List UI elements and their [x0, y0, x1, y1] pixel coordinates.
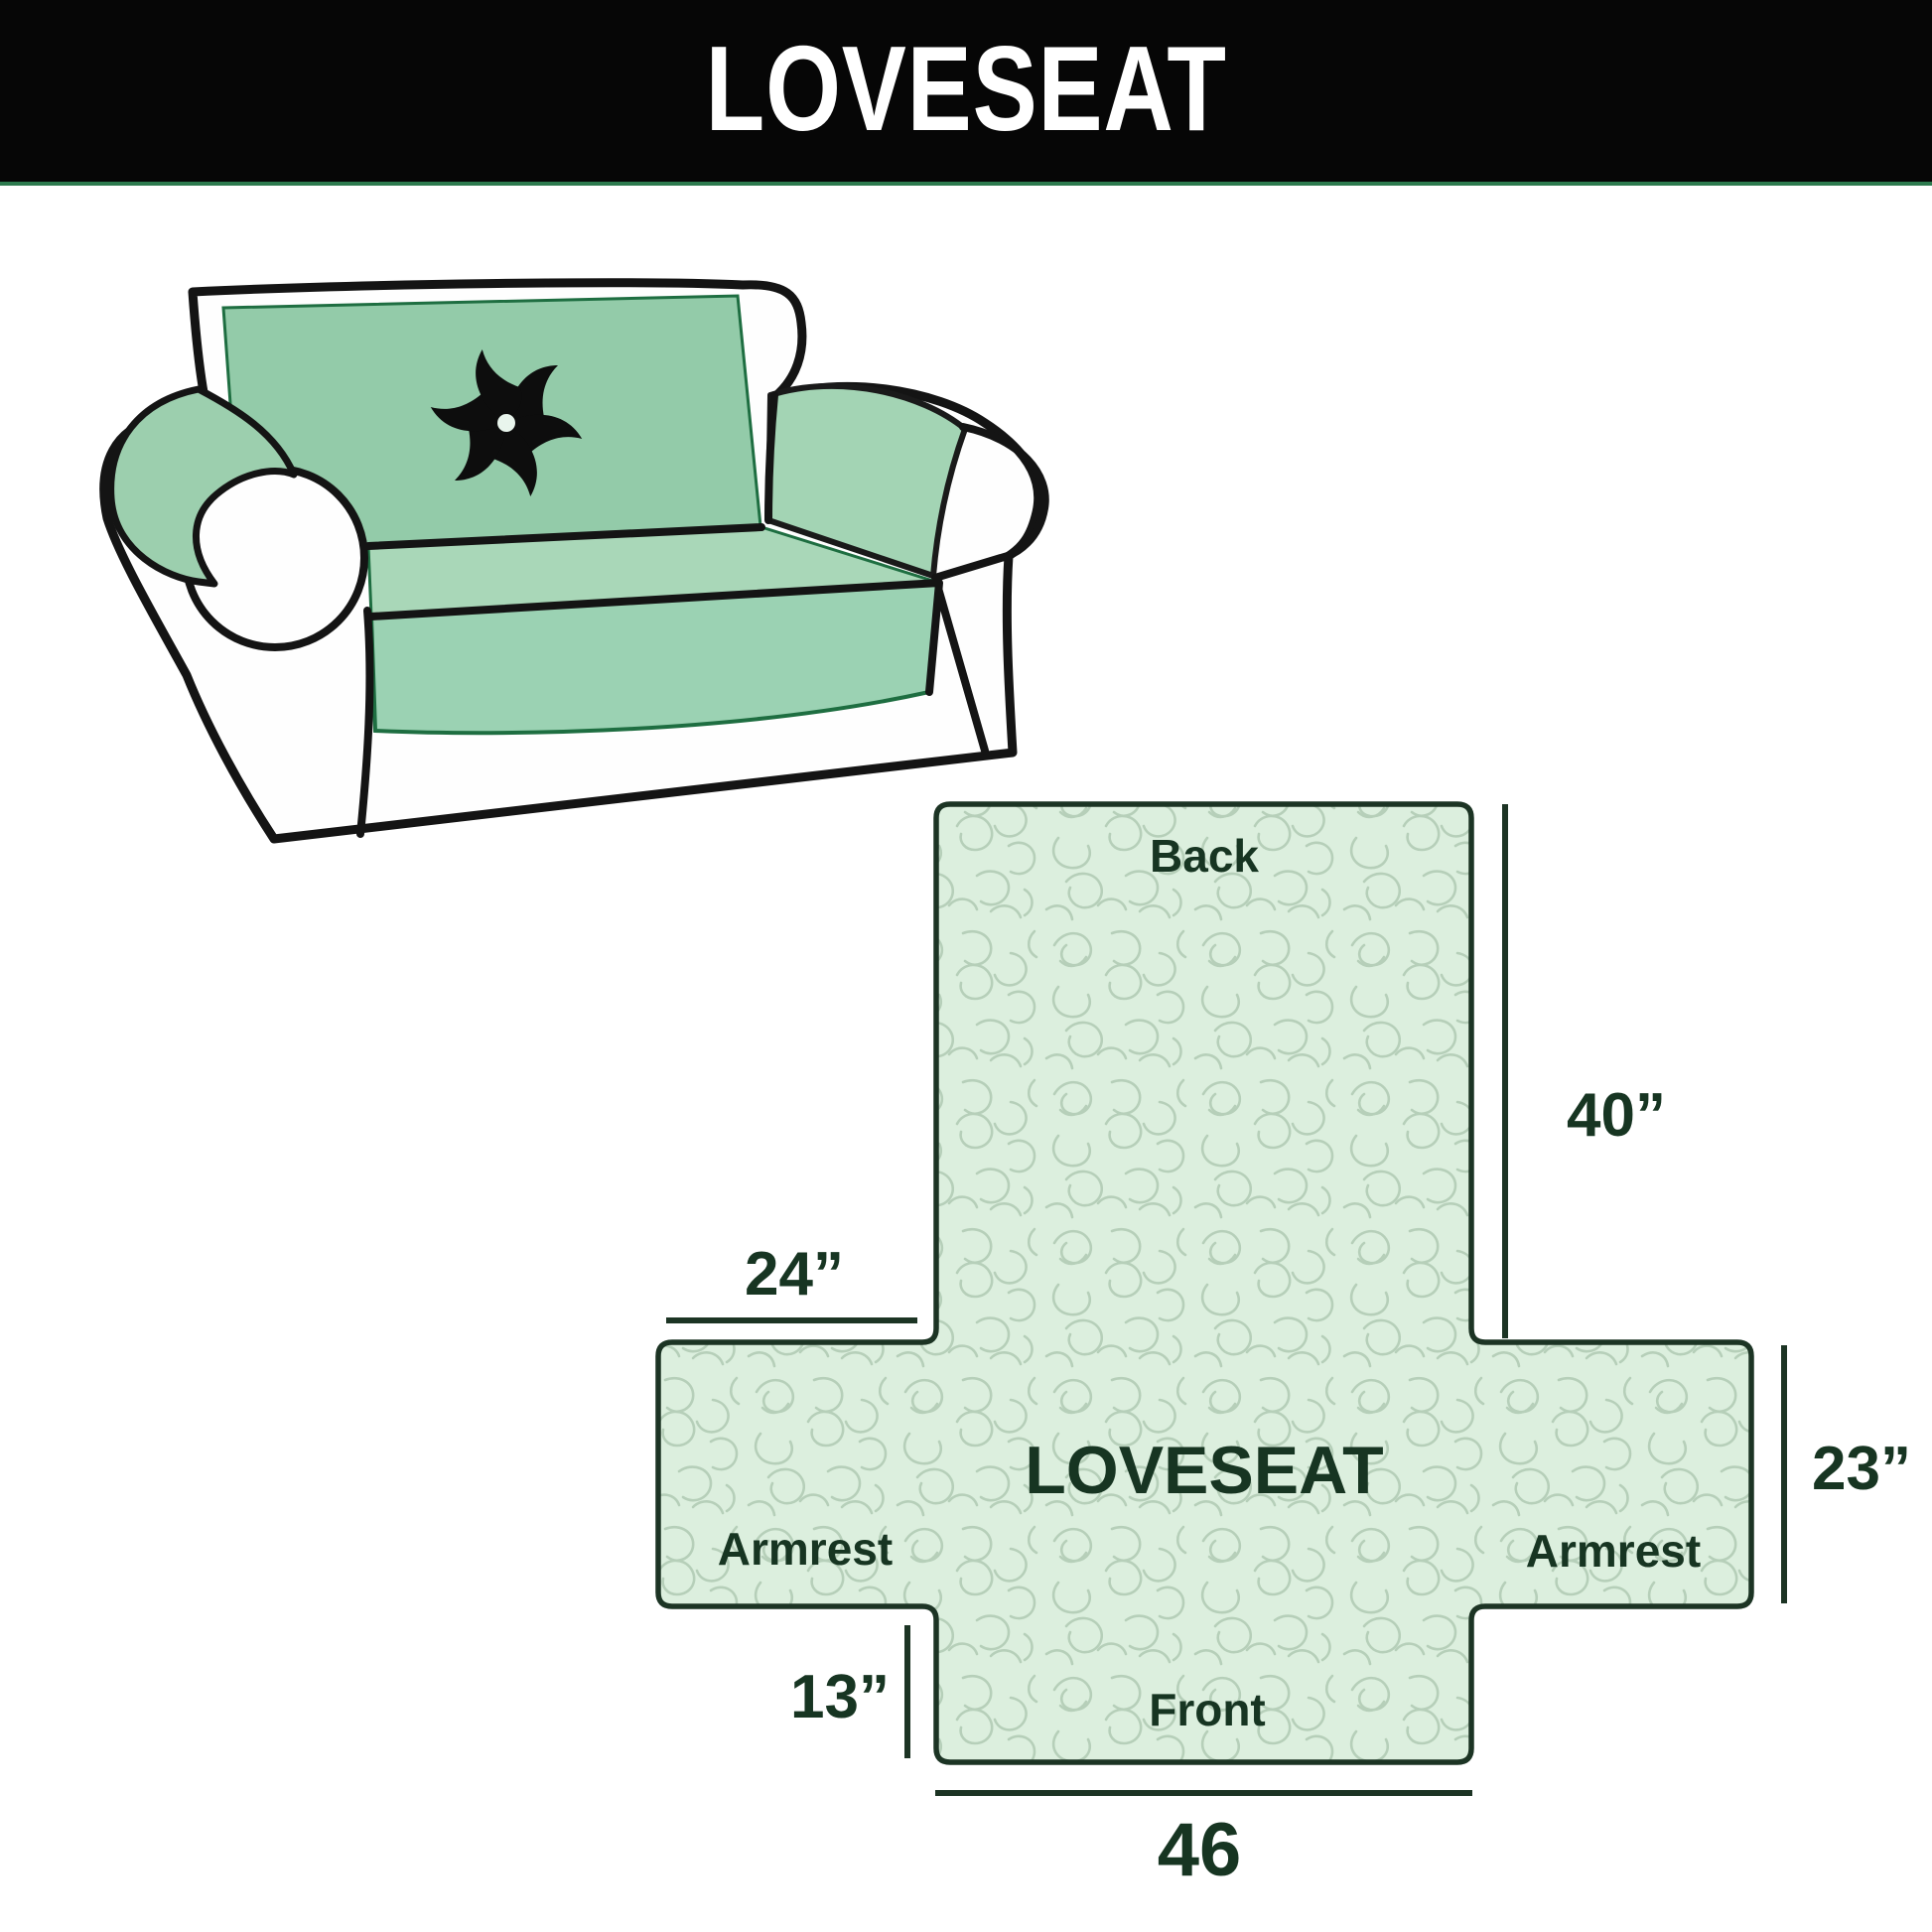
cover-dimension-diagram: Back LOVESEAT Armrest Armrest Front 40” … — [596, 774, 1932, 1932]
front-width-measurement: 46 — [1158, 1808, 1242, 1892]
front-section-label: Front — [1149, 1684, 1266, 1735]
armrest-left-label: Armrest — [718, 1523, 893, 1575]
front-drop-measurement: 13” — [790, 1663, 890, 1731]
cover-dimension-diagram-container: Back LOVESEAT Armrest Armrest Front 40” … — [596, 774, 1932, 1932]
page-title: LOVESEAT — [705, 28, 1226, 155]
header-bar: LOVESEAT — [0, 0, 1932, 186]
back-height-measurement: 40” — [1567, 1081, 1666, 1150]
armrest-right-label: Armrest — [1526, 1525, 1701, 1577]
armrest-width-measurement: 24” — [745, 1240, 844, 1309]
armrest-height-measurement: 23” — [1812, 1435, 1911, 1503]
product-center-label: LOVESEAT — [1025, 1433, 1383, 1508]
back-section-label: Back — [1150, 830, 1259, 882]
